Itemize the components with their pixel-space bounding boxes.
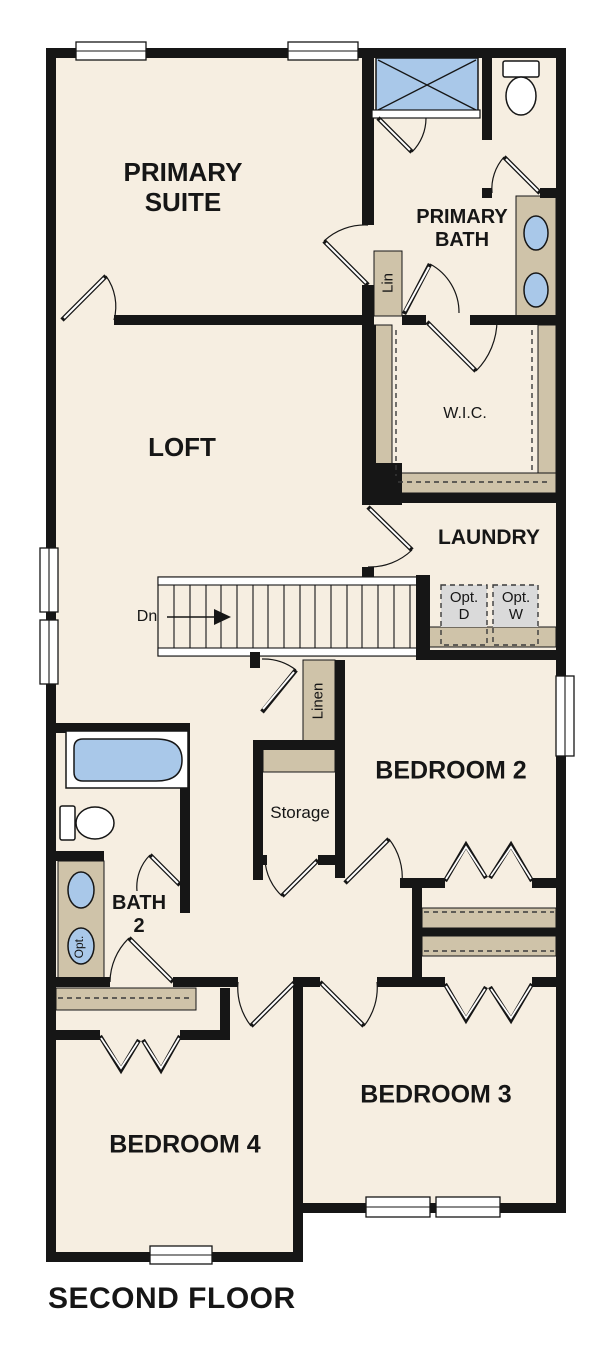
- floor-plan: PRIMARY SUITE LOFT PRIMARY BATH Lin W.I.…: [0, 0, 612, 1346]
- floor-plan-drawing: [0, 0, 612, 1346]
- label-bedroom-4: BEDROOM 4: [109, 1131, 260, 1160]
- window: [556, 676, 574, 756]
- window: [76, 42, 146, 60]
- wic-shelf-bottom: [392, 473, 556, 493]
- label-lin-closet: Lin: [380, 273, 397, 293]
- label-storage: Storage: [270, 803, 330, 823]
- window: [436, 1197, 500, 1217]
- wic-shelf-right: [538, 325, 556, 493]
- window: [150, 1246, 212, 1264]
- label-optional-washer: Opt. W: [502, 589, 530, 623]
- label-optional-sink: Opt.: [73, 936, 87, 959]
- sink: [524, 216, 548, 250]
- label-laundry: LAUNDRY: [438, 526, 540, 550]
- label-primary-suite: PRIMARY SUITE: [124, 157, 243, 217]
- label-optional-dryer: Opt. D: [450, 589, 478, 623]
- bath2-toilet: [60, 806, 114, 840]
- bedroom2-closet-shelf: [422, 908, 556, 928]
- label-loft: LOFT: [148, 432, 216, 462]
- staircase: [158, 577, 418, 656]
- shower: [372, 58, 480, 118]
- label-primary-bath: PRIMARY BATH: [416, 206, 507, 252]
- storage-shelf: [263, 748, 335, 772]
- window: [366, 1197, 430, 1217]
- window: [40, 548, 58, 612]
- bedroom4-closet-shelf: [56, 988, 196, 1010]
- label-bath-2: BATH 2: [112, 892, 166, 938]
- label-bedroom-2: BEDROOM 2: [375, 757, 526, 786]
- sink: [524, 273, 548, 307]
- sink: [68, 872, 94, 908]
- wic-shelf-left: [374, 325, 392, 465]
- bedroom3-closet-shelf: [422, 936, 556, 956]
- floor-title: SECOND FLOOR: [48, 1282, 296, 1316]
- primary-toilet: [503, 61, 539, 115]
- label-bedroom-3: BEDROOM 3: [360, 1081, 511, 1110]
- label-stairs-down: Dn: [137, 608, 157, 626]
- label-linen-closet: Linen: [310, 683, 327, 720]
- window: [40, 620, 58, 684]
- window: [288, 42, 358, 60]
- label-wic: W.I.C.: [443, 405, 487, 423]
- bathtub: [66, 731, 188, 788]
